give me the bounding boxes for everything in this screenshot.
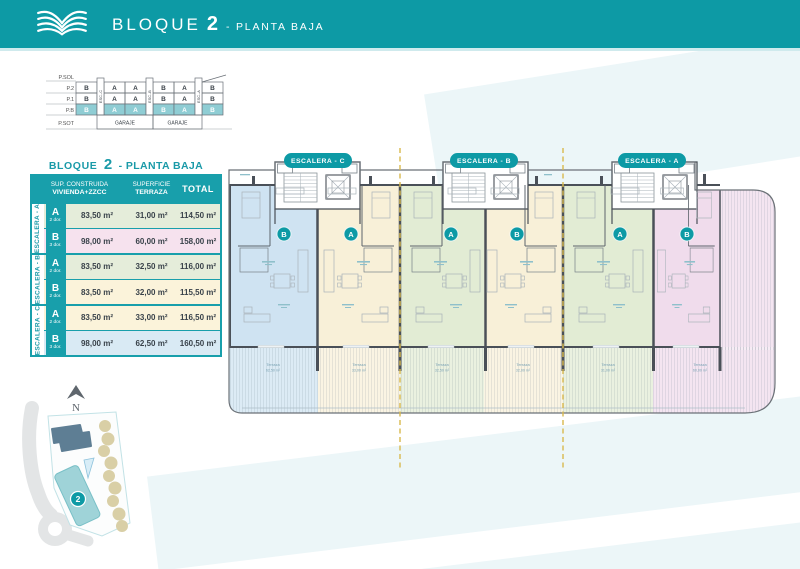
table-title-number: 2 (104, 156, 112, 173)
badge-letter: B (684, 230, 690, 239)
unit-dorms: 3 dor. (49, 346, 61, 351)
badge-letter: A (348, 230, 354, 239)
header-bar: BLOQUE 2 - PLANTA BAJA (0, 0, 800, 51)
unit-cell: B2 dor. (46, 280, 66, 304)
terrace-value: 32,00 m² (129, 280, 175, 304)
total-value: 160,50 m² (176, 331, 220, 355)
unit-cell: B (84, 85, 89, 92)
group-label-escalera-a: ESCALERA - A (32, 204, 44, 254)
total-value: 115,50 m² (176, 280, 220, 304)
unit-letter: A (52, 259, 59, 269)
unit-cell: A (133, 96, 138, 103)
garage-row: GARAJE GARAJE (97, 115, 202, 129)
unit-dorms: 2 dor. (49, 219, 61, 224)
stair-strip-label: ESC.-B (148, 90, 152, 103)
floor-plan: Terraza 62,50 m² Terraza 33,00 m² Terraz… (226, 146, 796, 476)
terrace-name: Terraza (601, 362, 615, 367)
header-total: TOTAL (176, 176, 220, 202)
unit-cell: A2 dor. (46, 204, 66, 228)
built-value: 83,50 m² (67, 306, 127, 330)
roof-line (202, 75, 226, 82)
unit-dorms: 2 dor. (49, 295, 61, 300)
built-value: 98,00 m² (67, 229, 127, 253)
table-row: B3 dor. 98,00 m² 60,00 m² 158,00 m² (32, 229, 220, 253)
page-title: BLOQUE 2 - PLANTA BAJA (112, 13, 324, 36)
terrace-value: 62,50 m² (129, 331, 175, 355)
title-number: 2 (207, 13, 218, 36)
header-built: SUP. CONSTRUIDA VIVIENDA+ZZCC (32, 176, 127, 202)
terrace-hatch (720, 190, 775, 350)
unit-cell: B (210, 85, 215, 92)
table-row: B3 dor. 98,00 m² 62,50 m² 160,50 m² (32, 331, 220, 355)
unit-letter: B (52, 233, 59, 243)
terrace-value: 60,00 m² (129, 229, 175, 253)
unit-cell-pb: B (210, 107, 215, 114)
title-block: BLOQUE (112, 15, 201, 35)
garage-label: GARAJE (167, 121, 188, 127)
terrace-name: Terraza (352, 362, 366, 367)
unit-dorms: 2 dor. (49, 270, 61, 275)
header-built-line2: VIVIENDA+ZZCC (52, 189, 106, 197)
header-built-line1: SUP. CONSTRUIDA (51, 181, 108, 188)
unit-cell: B (210, 96, 215, 103)
page: BLOQUE 2 - PLANTA BAJA P.SOL P.2 P.1 P.B… (0, 0, 800, 569)
unit-cell: A2 dor. (46, 306, 66, 330)
header-total-label: TOTAL (182, 184, 214, 194)
unit-letter: B (52, 335, 59, 345)
group-label-text: ESCALERA - B (35, 255, 42, 305)
floor-label: P.SOT (58, 121, 74, 127)
block-2-badge-number: 2 (76, 494, 81, 504)
terrace-area: 33,00 m² (352, 369, 367, 373)
unit-cell: A2 dor. (46, 255, 66, 279)
building-fills (229, 185, 775, 413)
unit-cell: A (112, 85, 117, 92)
terrace-name: Terraza (266, 362, 280, 367)
floor-label: P.2 (66, 86, 74, 92)
terrace-name: Terraza (516, 362, 530, 367)
terrace-value: 31,00 m² (129, 204, 175, 228)
pill-escalera-a-label: ESCALERA - A (625, 158, 679, 165)
terrace-hatch (229, 347, 775, 413)
block-2-badge: 2 (71, 492, 86, 507)
table-title-suffix: - PLANTA BAJA (119, 160, 204, 172)
site-plan: N 2 (18, 383, 208, 563)
unit-dorms: 3 dor. (49, 244, 61, 249)
total-value: 116,50 m² (176, 306, 220, 330)
built-value: 83,50 m² (67, 280, 127, 304)
total-value: 116,00 m² (176, 255, 220, 279)
unit-letter: A (52, 310, 59, 320)
floor-label: P.1 (66, 97, 74, 103)
pill-escalera-c-label: ESCALERA - C (291, 158, 345, 165)
unit-cell: A (182, 96, 187, 103)
unit-cell-pb: A (182, 107, 187, 114)
total-value: 114,50 m² (176, 204, 220, 228)
total-value: 158,00 m² (176, 229, 220, 253)
built-value: 83,50 m² (67, 255, 127, 279)
unit-cell: B (161, 85, 166, 92)
table-row: B2 dor. 83,50 m² 32,00 m² 115,50 m² (32, 280, 220, 304)
terrace-value: 33,00 m² (129, 306, 175, 330)
stair-strip-label: ESC.-C (99, 90, 103, 103)
floor-label: P.B (66, 108, 74, 114)
badge-letter: A (617, 230, 623, 239)
escalera-pills: ESCALERA - C ESCALERA - B ESCALERA - A (284, 153, 686, 168)
unit-cell-pb: A (133, 107, 138, 114)
brand-logo-icon (34, 7, 90, 41)
group-label-escalera-c: ESCALERA - C (32, 306, 44, 356)
title-floor: - PLANTA BAJA (226, 21, 324, 33)
group-label-text: ESCALERA - A (35, 204, 42, 253)
terrace-area: 32,00 m² (516, 369, 531, 373)
unit-cell: A (112, 96, 117, 103)
floor-label: P.SOL (59, 75, 75, 81)
terrace-value: 32,50 m² (129, 255, 175, 279)
roundabout (48, 522, 62, 536)
unit-cell: B3 dor. (46, 331, 66, 355)
unit-cell: B (161, 96, 166, 103)
badge-letter: B (514, 230, 520, 239)
terrace-name: Terraza (435, 362, 449, 367)
table-row: A2 dor. 83,50 m² 31,00 m² 114,50 m² (32, 204, 220, 228)
header-terrace: SUPERFICIE TERRAZA (129, 176, 175, 202)
unit-dorms: 2 dor. (49, 321, 61, 326)
badge-letter: A (448, 230, 454, 239)
surfaces-table: SUP. CONSTRUIDA VIVIENDA+ZZCC SUPERFICIE… (30, 174, 222, 357)
terrace-area: 31,00 m² (601, 369, 616, 373)
header-terrace-line1: SUPERFICIE (133, 181, 171, 188)
terrace-area: 60,00 m² (693, 369, 708, 373)
table-title-prefix: BLOQUE (49, 160, 98, 172)
table-title: BLOQUE 2 - PLANTA BAJA (30, 156, 222, 174)
unit-cell: A (133, 85, 138, 92)
built-value: 98,00 m² (67, 331, 127, 355)
unit-letter: A (52, 208, 59, 218)
unit-cell-pb: B (161, 107, 166, 114)
table-header-row: SUP. CONSTRUIDA VIVIENDA+ZZCC SUPERFICIE… (32, 176, 220, 202)
terrace-area: 62,50 m² (266, 369, 281, 373)
unit-cell-pb: A (112, 107, 117, 114)
north-arrow: N (67, 385, 85, 414)
north-label: N (72, 402, 80, 414)
badge-letter: B (281, 230, 287, 239)
unit-cell-pb: B (84, 107, 89, 114)
table-row: A2 dor. 83,50 m² 33,00 m² 116,50 m² (32, 306, 220, 330)
unit-letter: B (52, 284, 59, 294)
terrace-name: Terraza (693, 362, 707, 367)
terrace-area: 32,50 m² (435, 369, 450, 373)
table-row: A2 dor. 83,50 m² 32,50 m² 116,00 m² (32, 255, 220, 279)
building-section-diagram: P.SOL P.2 P.1 P.B P.SOT B A A B A B B (40, 72, 240, 138)
header-terrace-line2: TERRAZA (135, 189, 167, 197)
garage-label: GARAJE (115, 121, 136, 127)
built-value: 83,50 m² (67, 204, 127, 228)
stair-strip-label: ESC.-A (197, 90, 201, 103)
group-label-text: ESCALERA - C (35, 306, 42, 356)
unit-cell: B (84, 96, 89, 103)
pill-escalera-b-label: ESCALERA - B (457, 158, 511, 165)
unit-cell: A (182, 85, 187, 92)
group-label-escalera-b: ESCALERA - B (32, 255, 44, 305)
unit-cell: B3 dor. (46, 229, 66, 253)
